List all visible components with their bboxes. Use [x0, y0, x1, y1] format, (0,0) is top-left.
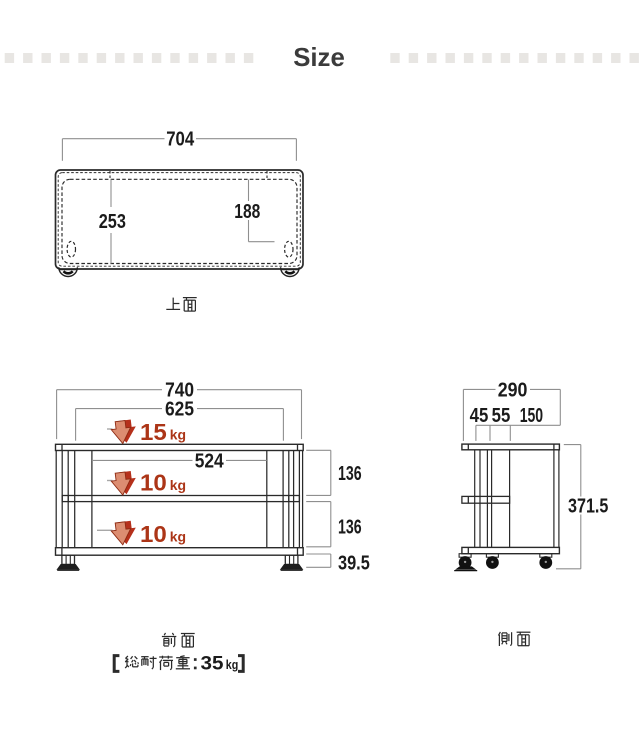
svg-text:39.5: 39.5 [338, 552, 370, 574]
svg-text:136: 136 [338, 516, 362, 538]
svg-text:kg: kg [170, 528, 186, 544]
svg-text:136: 136 [338, 463, 362, 485]
svg-text:625: 625 [165, 399, 194, 421]
svg-text:10: 10 [140, 470, 167, 496]
svg-text:15: 15 [140, 419, 167, 445]
svg-text:35: 35 [201, 653, 224, 674]
svg-text:kg: kg [170, 427, 186, 443]
svg-text:Size: Size [293, 42, 345, 72]
svg-text:150: 150 [520, 405, 543, 427]
svg-text:524: 524 [195, 450, 225, 472]
svg-text:kg: kg [170, 477, 186, 493]
svg-text:45: 45 [470, 405, 489, 427]
svg-text:253: 253 [99, 211, 126, 233]
svg-text:188: 188 [234, 201, 260, 223]
svg-text:kg: kg [226, 657, 239, 672]
svg-text:371.5: 371.5 [568, 496, 608, 518]
svg-text:290: 290 [498, 379, 528, 401]
svg-text:55: 55 [492, 405, 511, 427]
svg-text:704: 704 [166, 129, 195, 151]
svg-text:10: 10 [140, 521, 167, 547]
